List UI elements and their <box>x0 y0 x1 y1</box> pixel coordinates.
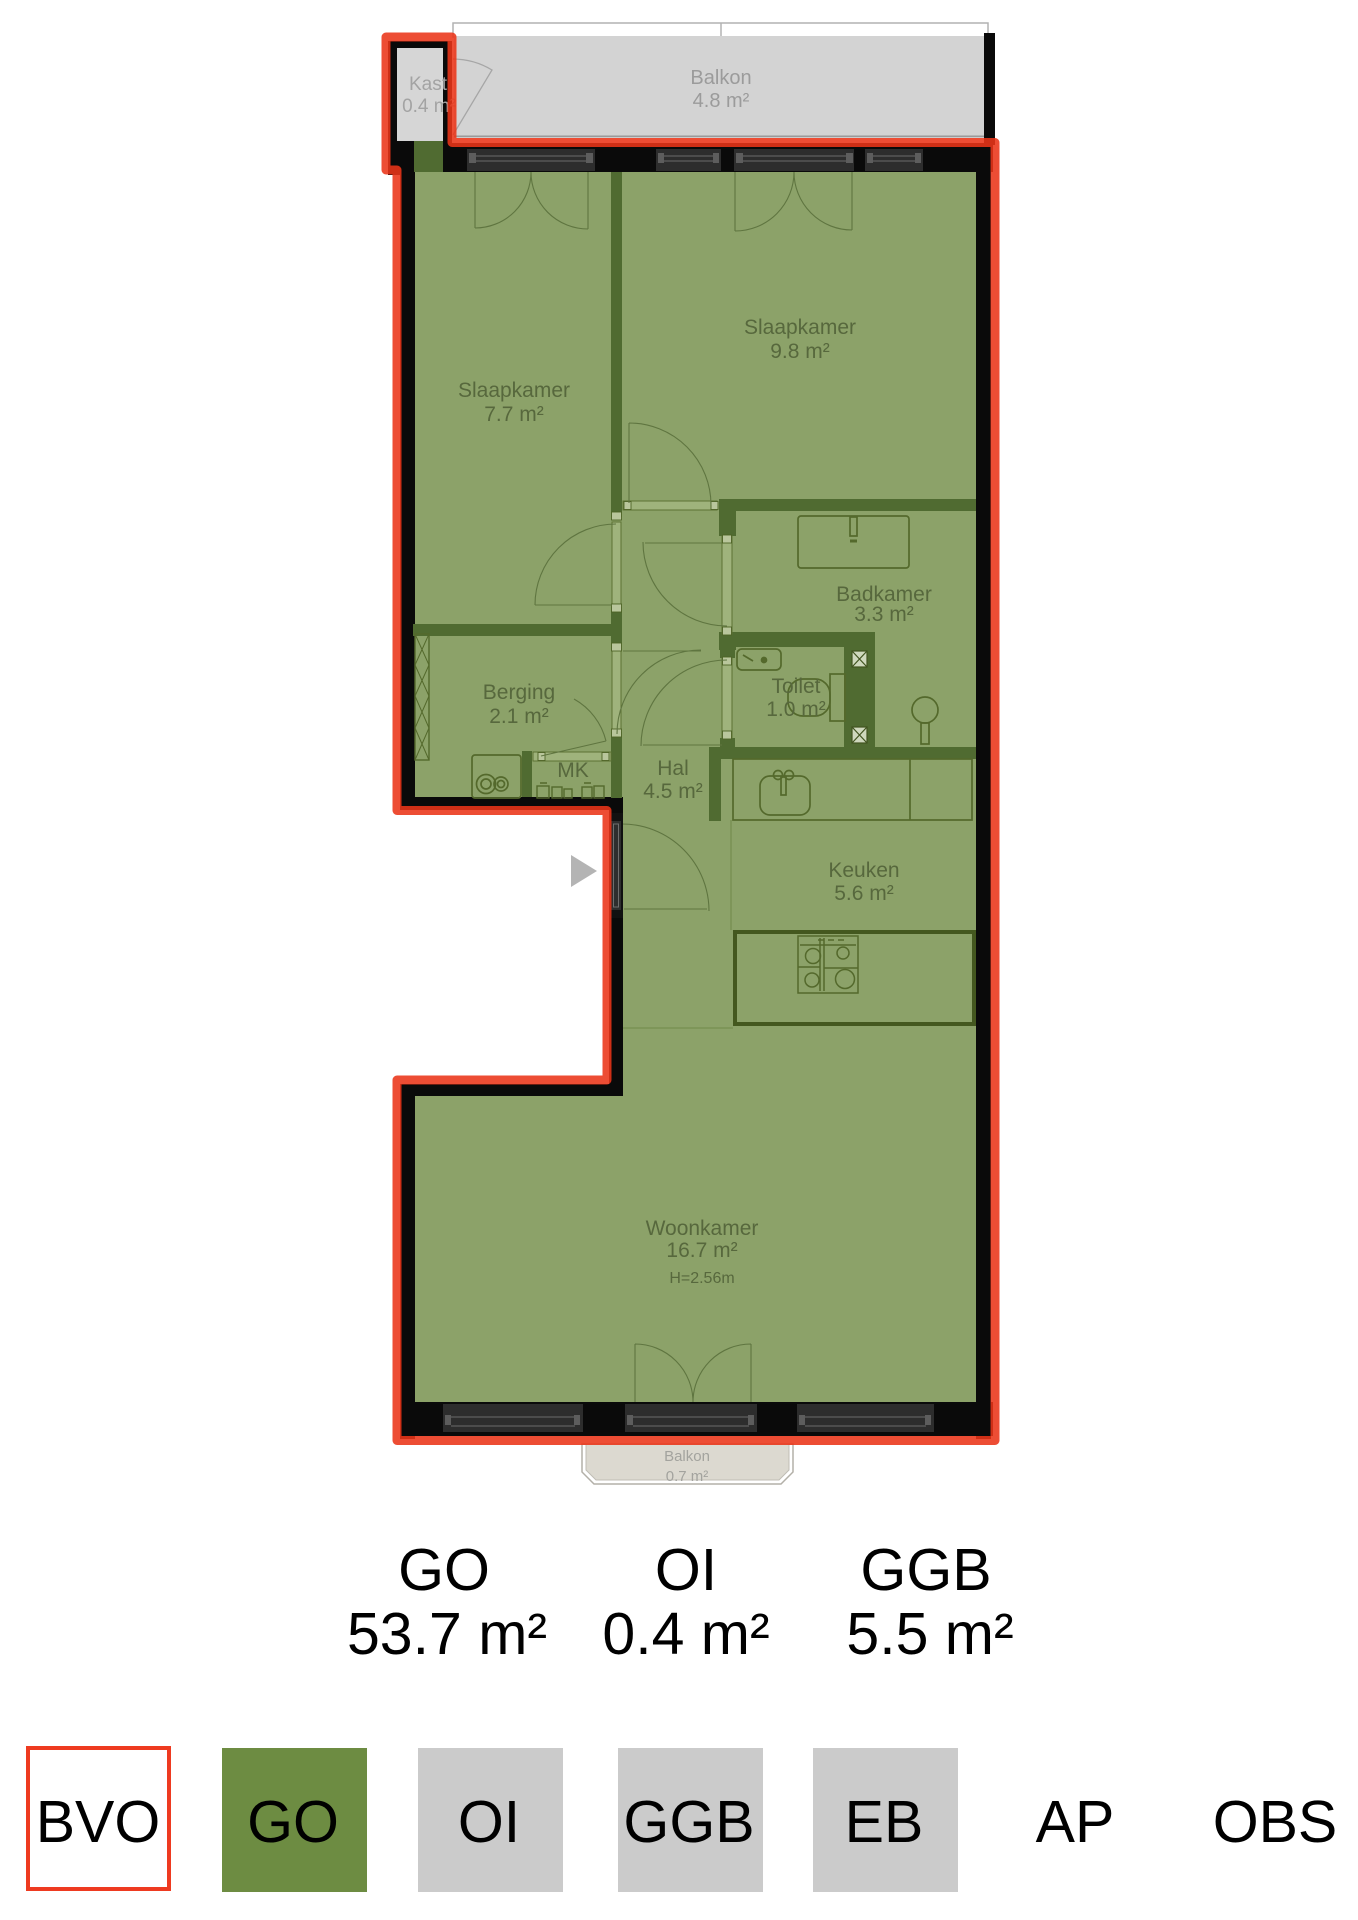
svg-text:5.5 m²: 5.5 m² <box>846 1601 1013 1667</box>
svg-text:16.7 m²: 16.7 m² <box>666 1239 737 1262</box>
svg-text:BVO: BVO <box>36 1789 161 1855</box>
svg-text:GGB: GGB <box>860 1537 991 1603</box>
svg-text:0.4 m²: 0.4 m² <box>602 1601 769 1667</box>
svg-text:MK: MK <box>557 759 589 782</box>
svg-text:OI: OI <box>655 1537 717 1603</box>
svg-text:7.7 m²: 7.7 m² <box>484 403 544 426</box>
svg-text:2.1 m²: 2.1 m² <box>489 705 549 728</box>
svg-text:Balkon: Balkon <box>664 1448 710 1465</box>
svg-text:OBS: OBS <box>1213 1789 1338 1855</box>
svg-text:Toilet: Toilet <box>771 675 820 698</box>
svg-text:Keuken: Keuken <box>828 859 899 882</box>
svg-text:0.7 m²: 0.7 m² <box>666 1468 709 1485</box>
svg-text:4.5 m²: 4.5 m² <box>643 780 703 803</box>
svg-text:3.3 m²: 3.3 m² <box>854 603 914 626</box>
svg-text:Balkon: Balkon <box>690 67 751 89</box>
svg-text:1.0 m²: 1.0 m² <box>766 698 826 721</box>
svg-text:AP: AP <box>1036 1789 1115 1855</box>
svg-text:Slaapkamer: Slaapkamer <box>458 379 570 402</box>
svg-text:GO: GO <box>398 1537 490 1603</box>
svg-text:9.8 m²: 9.8 m² <box>770 340 830 363</box>
svg-text:4.8 m²: 4.8 m² <box>693 90 750 112</box>
svg-text:Hal: Hal <box>657 757 689 780</box>
svg-text:Kast: Kast <box>409 74 448 95</box>
svg-text:EB: EB <box>845 1789 924 1855</box>
svg-text:GO: GO <box>247 1789 339 1855</box>
svg-text:Berging: Berging <box>483 681 555 704</box>
svg-text:Woonkamer: Woonkamer <box>646 1217 759 1240</box>
svg-text:H=2.56m: H=2.56m <box>669 1270 734 1287</box>
svg-text:GGB: GGB <box>623 1789 754 1855</box>
svg-text:5.6 m²: 5.6 m² <box>834 882 894 905</box>
svg-text:OI: OI <box>458 1789 520 1855</box>
svg-text:Slaapkamer: Slaapkamer <box>744 316 856 339</box>
svg-text:53.7 m²: 53.7 m² <box>347 1601 547 1667</box>
